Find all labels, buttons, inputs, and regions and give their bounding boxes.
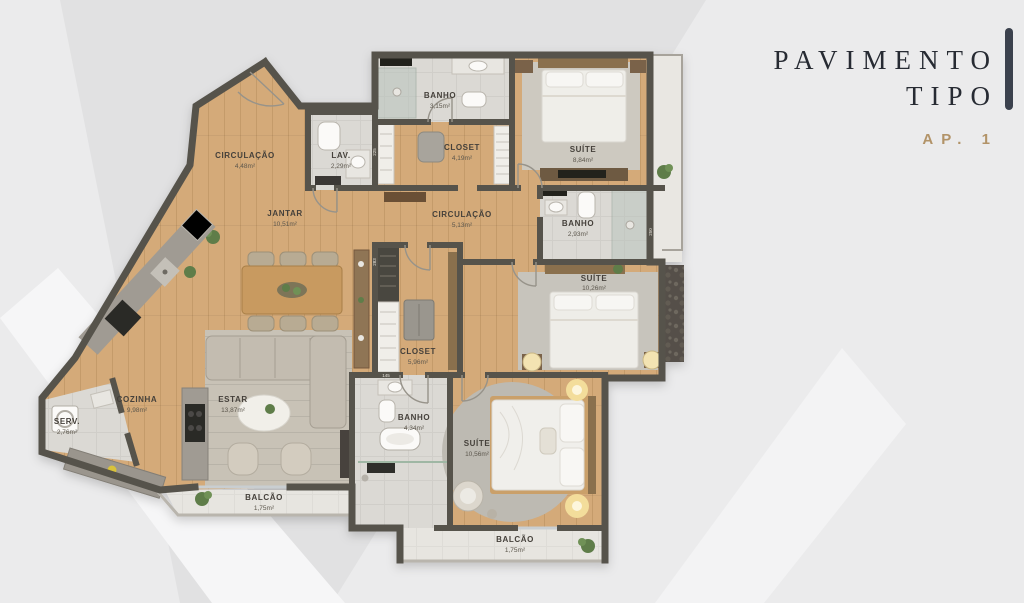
room-label-lav: LAV. (331, 151, 350, 160)
room-area-banho-2: 2,93m² (568, 231, 589, 238)
dimension-label: 250 (648, 228, 653, 236)
room-area-balcao-1: 1,75m² (254, 505, 275, 512)
room-label-suite-1: SUÍTE (570, 145, 597, 154)
room-area-jantar: 10,51m² (273, 221, 298, 228)
room-area-circulacao-1: 4,48m² (235, 163, 256, 170)
room-label-banho-1: BANHO (424, 91, 456, 100)
title-block: PAVIMENTO TIPO AP. 1 (773, 42, 998, 148)
page-title-line-1: PAVIMENTO (773, 42, 998, 78)
room-label-balcao-1: BALCÃO (245, 493, 283, 502)
room-label-banho-3: BANHO (398, 413, 430, 422)
room-area-suite-3: 10,56m² (465, 451, 490, 458)
room-area-cozinha: 9,98m² (127, 407, 148, 414)
page: CIRCULAÇÃO 4,48m² LAV. 2,29m² BANHO 3,15… (0, 0, 1024, 603)
room-label-suite-2: SUÍTE (581, 274, 608, 283)
room-label-circulacao-2: CIRCULAÇÃO (432, 210, 492, 219)
room-area-closet-1: 4,19m² (452, 155, 473, 162)
room-label-jantar: JANTAR (267, 209, 302, 218)
room-area-closet-2: 5,96m² (408, 359, 429, 366)
room-label-closet-1: CLOSET (444, 143, 480, 152)
room-label-cozinha: COZINHA (117, 395, 158, 404)
room-area-suite-2: 10,26m² (582, 285, 607, 292)
room-label-circulacao-1: CIRCULAÇÃO (215, 151, 275, 160)
room-area-banho-3: 4,34m² (404, 425, 425, 432)
dimension-label: 225 (372, 148, 377, 156)
apartment-label: AP. 1 (773, 131, 998, 148)
room-label-suite-3: SUÍTE (464, 439, 491, 448)
room-label-serv: SERV. (54, 417, 80, 426)
room-area-lav: 2,29m² (331, 163, 352, 170)
room-area-banho-1: 3,15m² (430, 103, 451, 110)
room-label-estar: ESTAR (218, 395, 248, 404)
room-area-estar: 13,87m² (221, 407, 246, 414)
room-label-closet-2: CLOSET (400, 347, 436, 356)
accent-bar (1005, 28, 1013, 110)
room-area-circulacao-2: 5,13m² (452, 222, 473, 229)
room-label-balcao-2: BALCÃO (496, 535, 534, 544)
room-area-balcao-2: 1,75m² (505, 547, 526, 554)
dimension-label: 145 (382, 373, 390, 378)
room-area-suite-1: 8,84m² (573, 157, 594, 164)
dimension-label: 283 (372, 258, 377, 266)
page-title-line-2: TIPO (773, 78, 998, 114)
room-label-banho-2: BANHO (562, 219, 594, 228)
room-area-serv: 2,76m² (57, 429, 78, 436)
console-table (384, 192, 426, 202)
